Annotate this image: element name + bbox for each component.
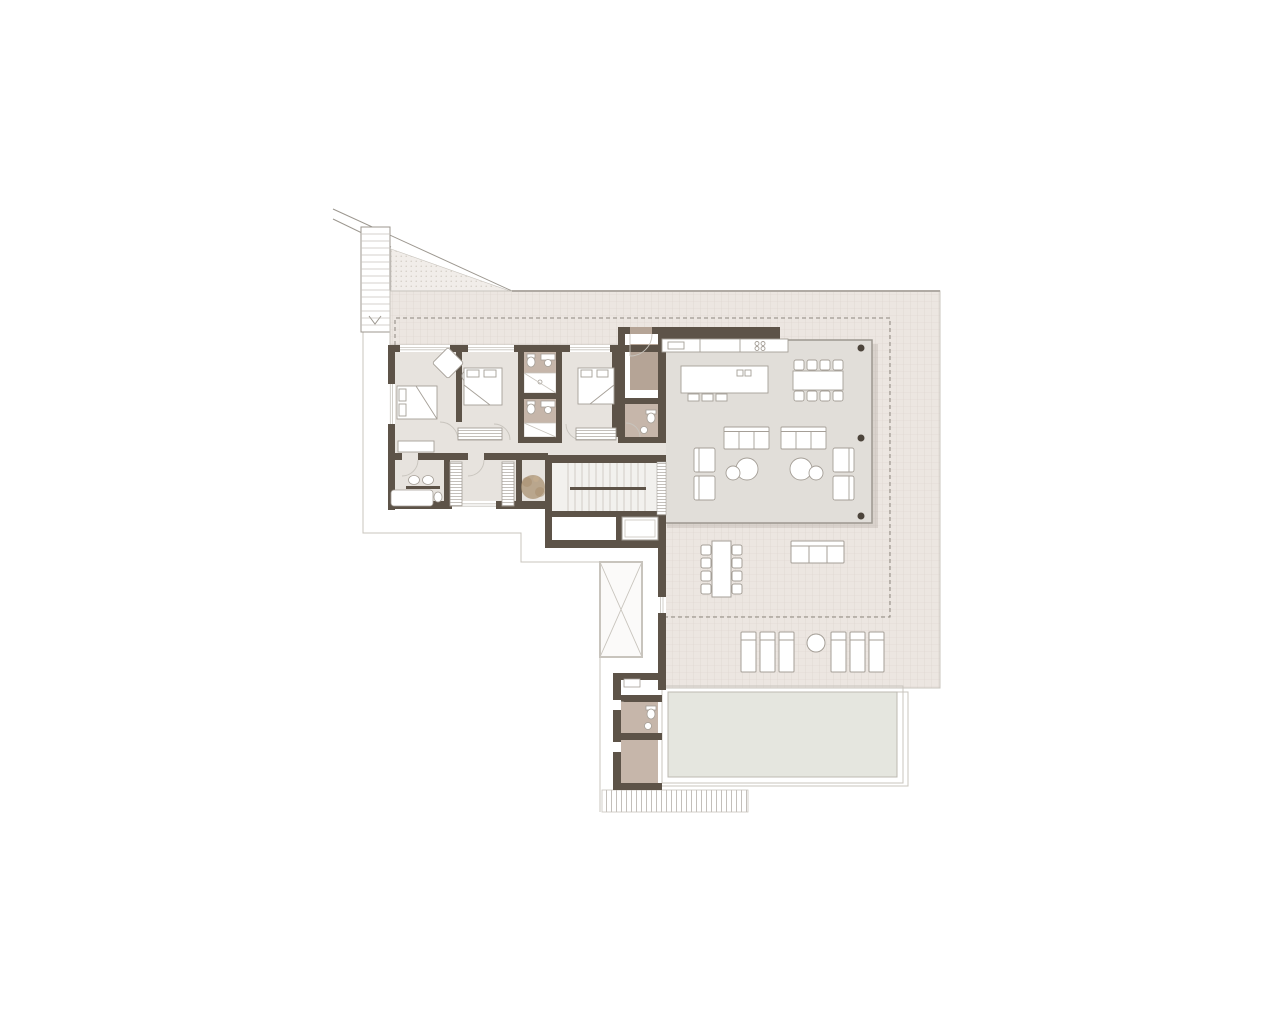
wall [518, 393, 562, 399]
sun-lounger [760, 632, 775, 672]
bed-2 [464, 368, 502, 405]
column [858, 435, 865, 442]
pool-house [621, 679, 658, 783]
bar-stool [716, 394, 727, 401]
window [388, 384, 395, 424]
floor-plan-page [0, 0, 1280, 1024]
wardrobe [458, 428, 502, 440]
cooktop [745, 370, 751, 376]
garden-walkway [602, 790, 748, 812]
outdoor-dining-table [712, 541, 731, 597]
exterior-stair [361, 227, 390, 332]
hall-to-living-opening [658, 443, 666, 455]
column [858, 513, 865, 520]
outdoor-chair [701, 571, 711, 581]
dining-table [793, 371, 843, 390]
window [400, 345, 450, 352]
floor-plan-drawing [0, 0, 1280, 1024]
sun-lounger [831, 632, 846, 672]
dining-chair [833, 391, 843, 401]
wing-west-wall [388, 345, 395, 510]
wall [516, 460, 522, 508]
bar-stool [688, 394, 699, 401]
sink [545, 360, 552, 367]
wall [618, 327, 625, 437]
sofa [724, 427, 769, 449]
plant [521, 475, 545, 499]
wardrobe [450, 462, 462, 506]
bed-master [397, 386, 437, 419]
swimming-pool [668, 692, 897, 777]
sink [641, 427, 648, 434]
sofa [781, 427, 826, 449]
entry-door-opening [630, 327, 652, 334]
side-table [807, 634, 825, 652]
outdoor-sofa [791, 541, 844, 563]
pool-store-floor [621, 740, 658, 783]
dining-chair [807, 360, 817, 370]
pool-room-door-opening [613, 700, 621, 710]
dining-chair [820, 360, 830, 370]
dining-chair [794, 391, 804, 401]
sink [645, 723, 652, 730]
sun-lounger [779, 632, 794, 672]
wall [518, 437, 562, 443]
elevator [622, 517, 658, 540]
sun-lounger [741, 632, 756, 672]
toilet [527, 404, 535, 414]
outdoor-chair [732, 545, 742, 555]
wardrobe [576, 428, 616, 440]
stair-north-wall [545, 455, 665, 463]
window [468, 345, 514, 352]
dresser [398, 441, 434, 452]
dining-chair [833, 360, 843, 370]
stair-handrail [570, 487, 646, 490]
wall [444, 460, 450, 508]
toilet [647, 413, 655, 423]
outdoor-chair [701, 558, 711, 568]
outdoor-chair [732, 571, 742, 581]
wall [552, 511, 658, 517]
wall [621, 733, 662, 740]
sun-lounger [850, 632, 865, 672]
column [858, 345, 865, 352]
outdoor-chair [732, 558, 742, 568]
toilet [434, 492, 442, 502]
stair-west-wall [545, 455, 552, 547]
outdoor-chair [732, 584, 742, 594]
vanity-counter [406, 486, 440, 489]
wall [418, 453, 468, 460]
outdoor-chair [701, 545, 711, 555]
window [658, 597, 666, 613]
dining-chair [794, 360, 804, 370]
gravel-area [391, 249, 510, 291]
kitchen-counter [662, 339, 788, 352]
sink [423, 476, 434, 485]
cooktop [737, 370, 743, 376]
bathtub [391, 490, 433, 506]
wall [621, 695, 662, 702]
armchair [833, 448, 854, 472]
armchair [833, 476, 854, 500]
bar-stool [702, 394, 713, 401]
dining-chair [820, 391, 830, 401]
toilet [527, 357, 535, 367]
sink [409, 476, 420, 485]
skylight-void [600, 562, 642, 657]
stair-south-wall [545, 540, 665, 548]
wardrobe [502, 462, 514, 506]
wall [484, 453, 548, 460]
wall [616, 517, 622, 541]
pool-house-west-wall [613, 673, 621, 790]
outdoor-chair [701, 584, 711, 594]
sink [545, 407, 552, 414]
armchair [694, 476, 715, 500]
clad-wall-hatch [657, 462, 666, 515]
wall [613, 783, 662, 790]
bed-3 [578, 368, 614, 404]
storage-room [552, 517, 616, 540]
kitchen-sink [668, 342, 684, 349]
window [570, 345, 610, 352]
toilet [646, 706, 656, 719]
armchair [694, 448, 715, 472]
shelf [624, 679, 640, 687]
sun-lounger [869, 632, 884, 672]
dining-chair [807, 391, 817, 401]
kitchen-north-wall [666, 327, 780, 339]
pool-room-door-opening [613, 742, 621, 752]
wall [388, 453, 402, 460]
